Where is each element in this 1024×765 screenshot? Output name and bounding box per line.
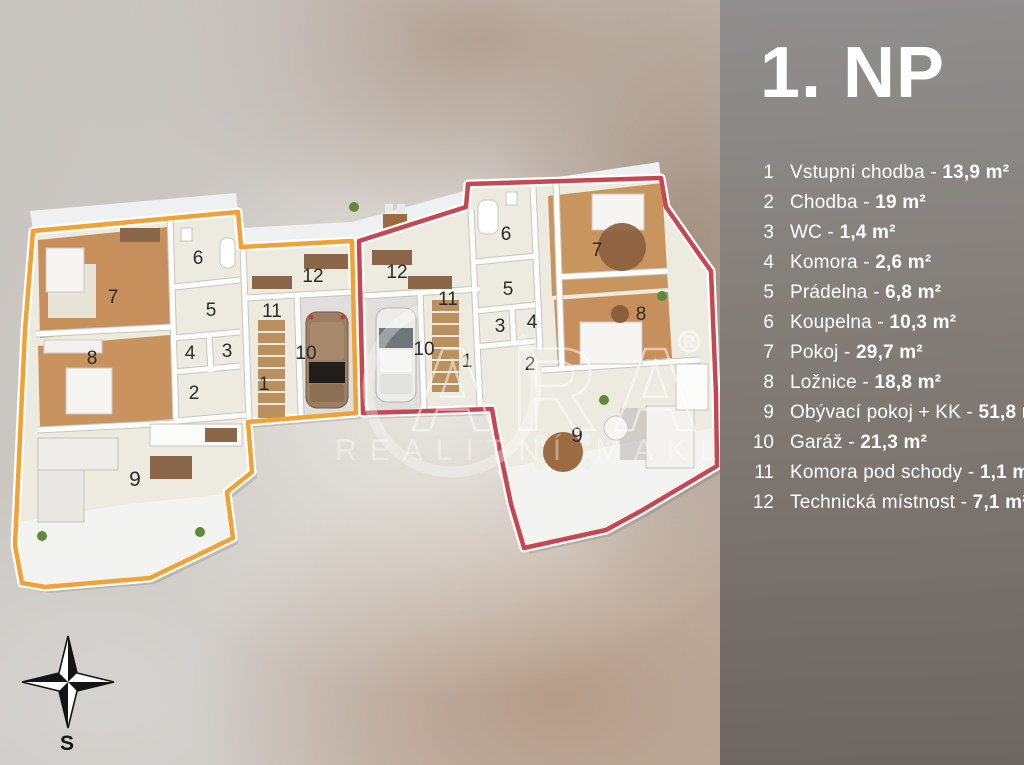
room-label: 11 <box>438 289 458 310</box>
floor-title: 1. NP <box>760 36 945 112</box>
legend-separator: - <box>925 162 943 183</box>
legend-separator: - <box>868 282 886 303</box>
legend-row: 7Pokoj - 29,7 m² <box>738 342 1018 372</box>
legend-row: 8Ložnice - 18,8 m² <box>738 372 1018 402</box>
room-label: 4 <box>185 343 196 364</box>
round-rug <box>598 223 646 271</box>
legend-room-area: 19 m² <box>875 192 926 213</box>
legend-room-name: Ložnice <box>790 372 857 393</box>
legend-number: 7 <box>738 342 774 364</box>
shelf <box>408 276 452 289</box>
legend-row: 6Koupelna - 10,3 m² <box>738 312 1018 342</box>
legend-room-area: 1,4 m² <box>840 222 896 243</box>
bed <box>46 248 84 292</box>
plant <box>657 291 667 301</box>
room-label: 7 <box>592 240 603 261</box>
legend-separator: - <box>872 312 890 333</box>
watermark-registered: ® <box>678 326 700 359</box>
room-label: 8 <box>636 304 647 325</box>
room-label: 8 <box>87 348 98 369</box>
room-label: 2 <box>189 383 200 404</box>
legend-row: 2Chodba - 19 m² <box>738 192 1018 222</box>
legend-room-area: 7,1 m² <box>973 492 1024 513</box>
legend-number: 9 <box>738 402 774 424</box>
toilet <box>506 192 517 205</box>
compass-label: S <box>60 732 74 755</box>
bathtub <box>220 238 235 268</box>
legend-number: 3 <box>738 222 774 244</box>
toilet <box>181 228 192 241</box>
legend-number: 5 <box>738 282 774 304</box>
room-label: 12 <box>302 266 323 287</box>
desk <box>120 228 160 242</box>
floorplan-page: 7 6 12 5 11 4 3 10 8 2 1 9 6 7 12 11 5 3… <box>0 0 1024 765</box>
kitchen-island <box>150 456 192 479</box>
bed <box>66 368 112 414</box>
legend-number: 2 <box>738 192 774 214</box>
legend-room-name: Pokoj <box>790 342 839 363</box>
legend-separator: - <box>961 402 979 423</box>
room-label: 9 <box>129 468 141 491</box>
legend-row: 12Technická místnost - 7,1 m² <box>738 492 1018 522</box>
room-label: 6 <box>501 224 512 245</box>
legend-room-area: 13,9 m² <box>942 162 1009 183</box>
room-label: 3 <box>222 341 233 362</box>
legend-list: 1Vstupní chodba - 13,9 m² 2Chodba - 19 m… <box>738 162 1018 522</box>
compass: S <box>22 636 114 755</box>
legend-number: 4 <box>738 252 774 274</box>
room-label: 10 <box>295 343 316 364</box>
legend-number: 11 <box>738 462 774 484</box>
legend-separator: - <box>955 492 973 513</box>
room-label: 6 <box>193 248 204 269</box>
plant <box>349 202 359 212</box>
legend-room-name: Chodba <box>790 192 858 213</box>
legend-row: 5Prádelna - 6,8 m² <box>738 282 1018 312</box>
legend-room-area: 18,8 m² <box>874 372 941 393</box>
legend-separator: - <box>839 342 857 363</box>
legend-room-area: 2,6 m² <box>875 252 931 273</box>
legend-room-area: 10,3 m² <box>889 312 956 333</box>
shelf <box>252 276 292 289</box>
room-label: 7 <box>108 287 119 308</box>
legend-number: 1 <box>738 162 774 184</box>
legend-room-name: WC <box>790 222 822 243</box>
pouf <box>611 305 629 323</box>
legend-room-name: Vstupní chodba <box>790 162 925 183</box>
legend-number: 8 <box>738 372 774 394</box>
legend-room-name: Prádelna <box>790 282 868 303</box>
legend-room-area: 21,3 m² <box>860 432 927 453</box>
legend-number: 10 <box>738 432 774 454</box>
room-label: 1 <box>259 374 270 395</box>
legend-room-area: 51,8 m² <box>979 402 1024 423</box>
legend-number: 6 <box>738 312 774 334</box>
legend-room-name: Koupelna <box>790 312 872 333</box>
legend-separator: - <box>822 222 840 243</box>
legend-row: 3WC - 1,4 m² <box>738 222 1018 252</box>
room-label: 11 <box>262 301 282 322</box>
legend-room-area: 1,1 m² <box>980 462 1024 483</box>
room-label: 5 <box>503 279 514 300</box>
legend-separator: - <box>962 462 980 483</box>
legend-separator: - <box>858 192 876 213</box>
legend-room-area: 29,7 m² <box>856 342 923 363</box>
legend-row: 9Obývací pokoj + KK - 51,8 m² <box>738 402 1018 432</box>
legend-room-name: Komora pod schody <box>790 462 962 483</box>
legend-row: 10Garáž - 21,3 m² <box>738 432 1018 462</box>
legend-separator: - <box>843 432 861 453</box>
legend-row: 1Vstupní chodba - 13,9 m² <box>738 162 1018 192</box>
legend-room-name: Komora <box>790 252 858 273</box>
room-label: 5 <box>206 300 217 321</box>
legend-room-name: Garáž <box>790 432 843 453</box>
legend-room-name: Technická místnost <box>790 492 955 513</box>
legend-row: 4Komora - 2,6 m² <box>738 252 1018 282</box>
bathtub <box>478 200 498 234</box>
legend-room-area: 6,8 m² <box>885 282 941 303</box>
room-label: 12 <box>386 262 407 283</box>
legend-number: 12 <box>738 492 774 514</box>
legend-separator: - <box>858 252 876 273</box>
legend-room-name: Obývací pokoj + KK <box>790 402 961 423</box>
legend-sidebar: 1. NP 1Vstupní chodba - 13,9 m² 2Chodba … <box>720 0 1024 765</box>
legend-row: 11Komora pod schody - 1,1 m² <box>738 462 1018 492</box>
plant <box>195 527 205 537</box>
legend-separator: - <box>857 372 875 393</box>
plant <box>37 531 47 541</box>
